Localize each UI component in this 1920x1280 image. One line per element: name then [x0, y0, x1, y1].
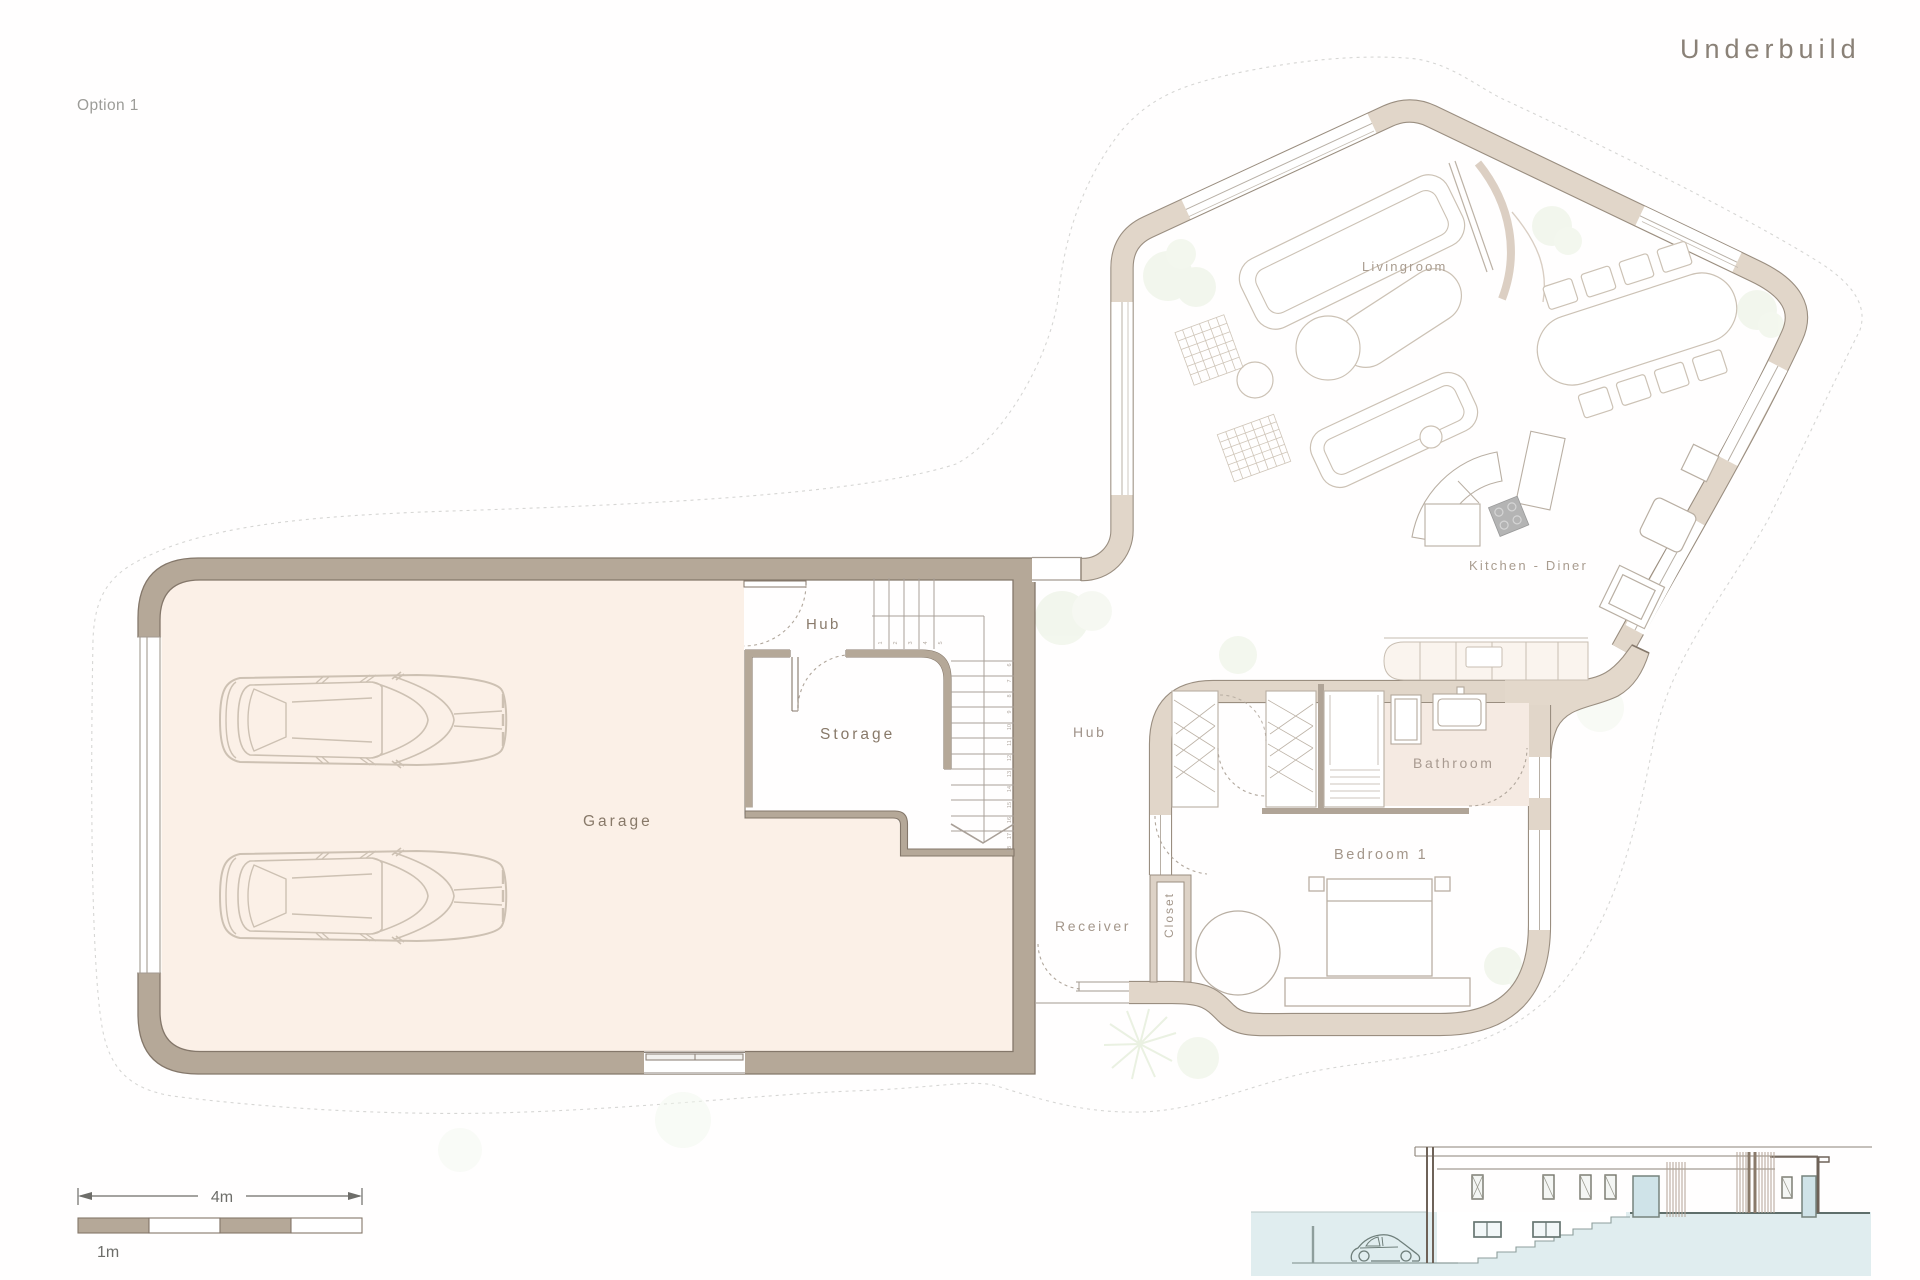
- svg-text:5: 5: [938, 641, 944, 644]
- svg-text:Closet: Closet: [1162, 892, 1176, 938]
- svg-text:14: 14: [1007, 786, 1013, 792]
- svg-text:18: 18: [1007, 846, 1013, 852]
- svg-text:12: 12: [1007, 755, 1013, 761]
- svg-text:Option 1: Option 1: [77, 97, 139, 114]
- svg-text:16: 16: [1007, 817, 1013, 823]
- svg-text:Kitchen - Diner: Kitchen - Diner: [1469, 558, 1588, 573]
- svg-text:13: 13: [1007, 771, 1013, 777]
- svg-text:7: 7: [1007, 679, 1013, 682]
- svg-text:1: 1: [878, 641, 884, 644]
- svg-text:11: 11: [1007, 740, 1013, 746]
- svg-text:Receiver: Receiver: [1055, 918, 1131, 934]
- svg-text:Hub: Hub: [806, 616, 841, 633]
- svg-text:Underbuild: Underbuild: [1680, 34, 1861, 64]
- svg-text:4: 4: [923, 641, 929, 644]
- svg-text:15: 15: [1007, 802, 1013, 808]
- svg-text:10: 10: [1007, 724, 1013, 730]
- svg-text:4m: 4m: [211, 1189, 233, 1206]
- svg-text:8: 8: [1007, 694, 1013, 697]
- svg-text:6: 6: [1007, 663, 1013, 666]
- svg-text:Storage: Storage: [820, 726, 895, 743]
- svg-text:9: 9: [1007, 710, 1013, 713]
- svg-text:Garage: Garage: [583, 813, 653, 830]
- svg-text:Bathroom: Bathroom: [1413, 755, 1495, 771]
- svg-text:Livingroom: Livingroom: [1362, 259, 1448, 274]
- svg-text:Bedroom 1: Bedroom 1: [1334, 847, 1428, 863]
- svg-text:1m: 1m: [97, 1244, 119, 1261]
- svg-text:3: 3: [908, 641, 914, 644]
- svg-text:17: 17: [1007, 833, 1013, 839]
- svg-text:Hub: Hub: [1073, 724, 1106, 740]
- svg-text:2: 2: [893, 641, 899, 644]
